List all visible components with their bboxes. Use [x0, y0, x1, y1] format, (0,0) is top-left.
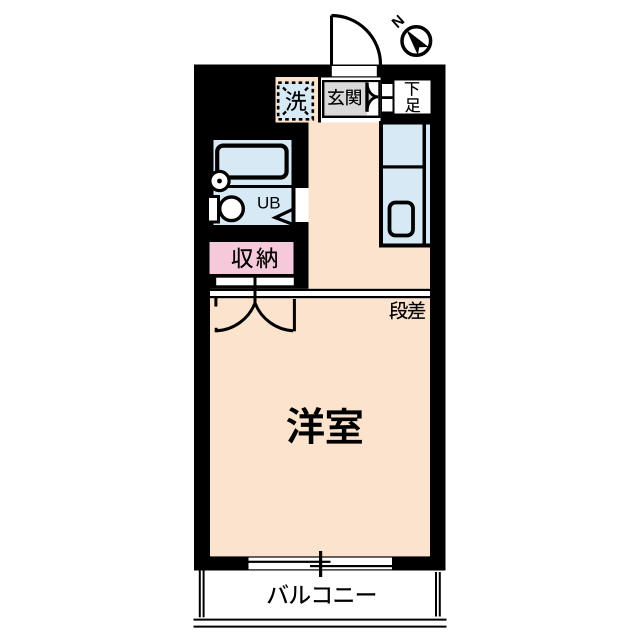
- svg-text:UB: UB: [257, 193, 281, 212]
